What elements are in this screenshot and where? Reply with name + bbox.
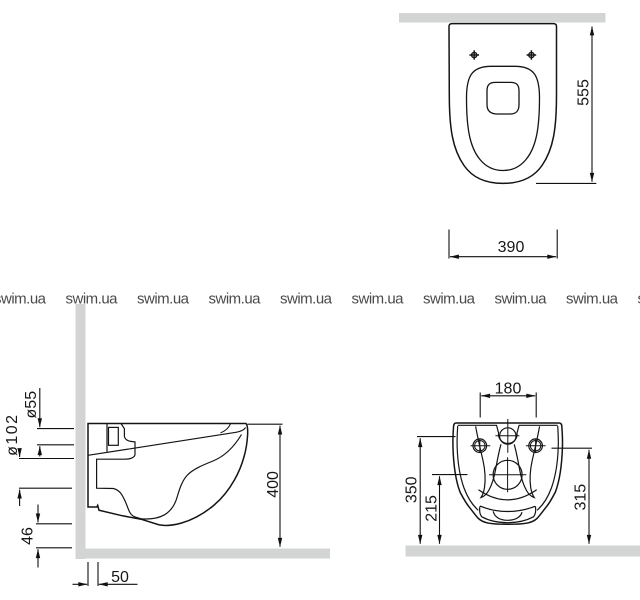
svg-text:350: 350 <box>404 476 421 503</box>
svg-text:390: 390 <box>498 239 525 256</box>
svg-text:swim.ua: swim.ua <box>495 291 548 308</box>
svg-text:swim.ua: swim.ua <box>0 291 47 308</box>
svg-text:400: 400 <box>265 471 282 498</box>
svg-text:50: 50 <box>111 569 129 586</box>
svg-text:46: 46 <box>20 527 37 545</box>
svg-text:215: 215 <box>423 495 440 522</box>
svg-text:swim.ua: swim.ua <box>566 291 619 308</box>
svg-text:ø102: ø102 <box>4 413 21 455</box>
svg-text:315: 315 <box>572 484 589 511</box>
svg-text:ø55: ø55 <box>23 391 40 419</box>
svg-text:180: 180 <box>495 381 522 398</box>
svg-text:swim.ua: swim.ua <box>137 291 190 308</box>
svg-text:swim.ua: swim.ua <box>352 291 405 308</box>
svg-text:swim.ua: swim.ua <box>209 291 262 308</box>
svg-text:swim.ua: swim.ua <box>66 291 119 308</box>
svg-text:swim.ua: swim.ua <box>423 291 476 308</box>
svg-text:swim.ua: swim.ua <box>280 291 333 308</box>
svg-text:555: 555 <box>576 79 593 106</box>
